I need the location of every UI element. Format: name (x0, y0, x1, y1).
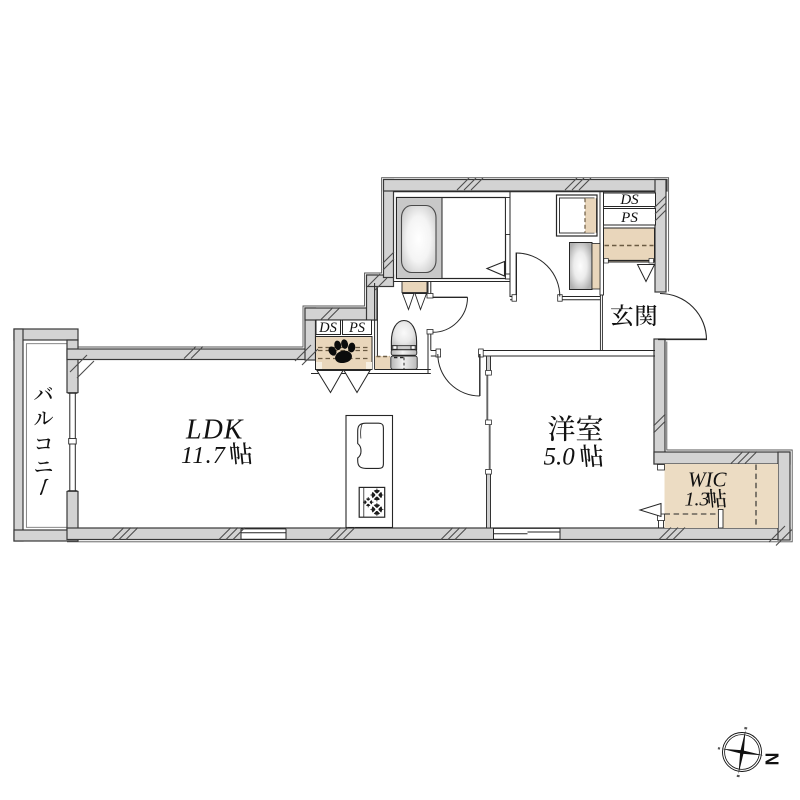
svg-text:N: N (762, 753, 782, 766)
svg-text:LDK: LDK (185, 415, 244, 446)
svg-text:DS: DS (619, 192, 639, 208)
svg-text:1.3: 1.3 (685, 489, 710, 511)
svg-text:11.7: 11.7 (181, 443, 226, 469)
svg-text:PS: PS (620, 210, 638, 226)
svg-text:DS: DS (318, 320, 337, 336)
svg-text:5.0: 5.0 (544, 444, 576, 471)
svg-text:PS: PS (348, 320, 366, 336)
